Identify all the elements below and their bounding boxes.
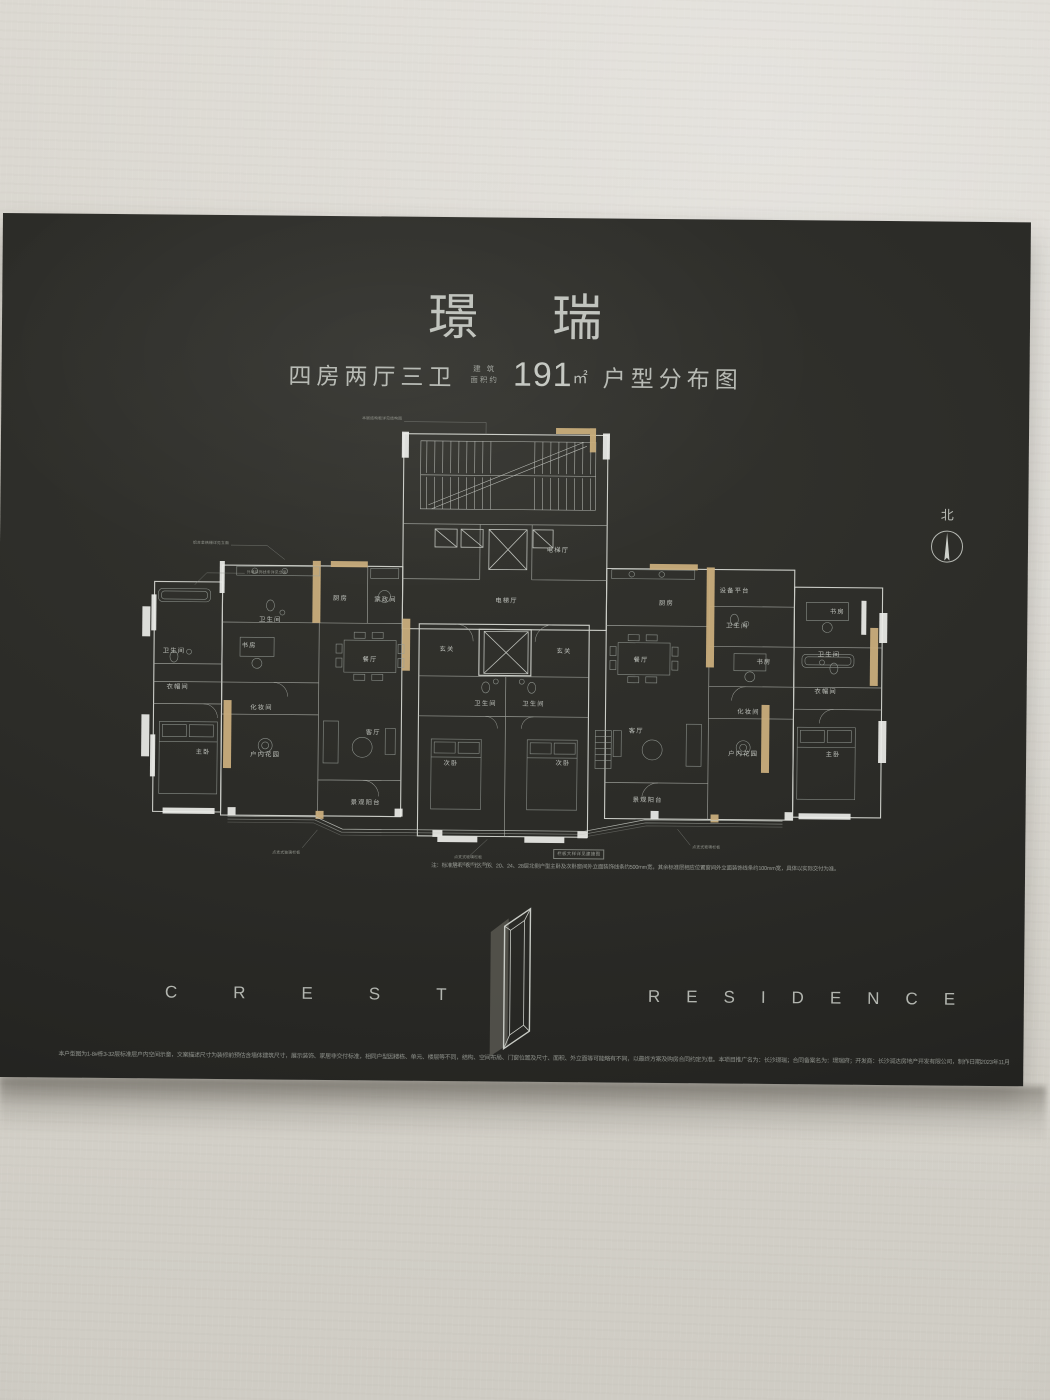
compass-icon [927, 525, 967, 565]
room-label: 客厅 [366, 727, 381, 736]
plan-annotation: 铝合金格栅详见立面 [193, 540, 229, 545]
room-label: 卫生间 [818, 649, 841, 658]
plan-annotation: 本层结构板详见结构图 [362, 415, 402, 420]
room-label: 主卧 [826, 749, 841, 758]
room-label: 家政间 [374, 594, 397, 603]
shear-walls [140, 429, 889, 846]
subtitle-suffix: 户型分布图 [603, 359, 743, 394]
room-label: 餐厅 [362, 654, 377, 663]
floor-plan: 电梯厅电梯厅厨房家政间餐厅卫生间书房卫生间衣帽间化妆间主卧户内花园客厅景观阳台玄… [132, 396, 902, 873]
plan-annotation: 点支式玻璃栏板 [272, 849, 300, 854]
room-label: 次卧 [555, 758, 570, 767]
room-label: 化妆间 [737, 707, 760, 716]
room-label: 次卧 [443, 758, 458, 767]
layout-text: 四房两厅三卫 [288, 356, 456, 392]
room-label: 化妆间 [250, 702, 273, 711]
area-prefix: 建 筑 面积约 [470, 365, 499, 386]
board-drop-shadow [0, 1077, 1046, 1144]
plan-outer-walls [152, 431, 884, 840]
floorplan-display-board: 璟 瑞 四房两厅三卫 建 筑 面积约 191㎡ 户型分布图 [0, 213, 1031, 1086]
room-label: 书房 [756, 657, 771, 666]
logo-text-crest: CREST [165, 983, 503, 1006]
room-label: 客厅 [629, 726, 644, 735]
room-label: 景观阳台 [351, 797, 381, 806]
room-label: 玄关 [557, 646, 572, 655]
room-labels: 电梯厅电梯厅厨房家政间餐厅卫生间书房卫生间衣帽间化妆间主卧户内花园客厅景观阳台玄… [161, 413, 847, 869]
room-label: 厨房 [333, 593, 348, 602]
room-label: 卫生间 [726, 621, 749, 630]
logo-text-residence: RESIDENCE [648, 987, 981, 1010]
unit-subtitle: 四房两厅三卫 建 筑 面积约 191㎡ 户型分布图 [1, 351, 1029, 399]
project-title: 璟 瑞 [2, 273, 1031, 354]
room-label: 景观阳台 [633, 795, 663, 804]
room-label: 餐厅 [633, 655, 648, 664]
room-label: 户内花园 [728, 749, 758, 758]
room-label: 卫生间 [474, 698, 497, 707]
leader-lines [192, 420, 694, 858]
tower-logo-icon [481, 900, 546, 1061]
plan-annotation: 外墙装饰线条详见立面 [247, 569, 287, 574]
detail-reference-box: 栏板大样详见建施图 [553, 849, 604, 859]
room-label: 设备平台 [720, 586, 750, 595]
room-label: 书房 [830, 607, 845, 616]
photo-of-floorplan-board: { "board": { "title": "璟 瑞", "subtitle":… [0, 0, 1050, 1400]
plan-annotation: 点支式玻璃栏板 [454, 854, 482, 859]
room-label: 卫生间 [259, 614, 282, 623]
room-label: 电梯厅 [547, 545, 570, 554]
room-label: 卫生间 [522, 699, 545, 708]
stair-core [420, 441, 596, 511]
area-unit: ㎡ [573, 370, 589, 387]
room-label: 书房 [242, 640, 257, 649]
room-label: 衣帽间 [814, 686, 837, 695]
room-label: 玄关 [440, 644, 455, 653]
north-label: 北 [925, 504, 969, 523]
room-label: 厨房 [659, 598, 674, 607]
room-label: 卫生间 [163, 645, 186, 654]
room-label: 主卧 [196, 747, 211, 756]
room-label: 户内花园 [250, 749, 280, 758]
plan-partitions [152, 521, 883, 840]
area-value: 191㎡ [513, 356, 589, 396]
room-label: 电梯厅 [495, 595, 518, 604]
plan-annotation: 点支式玻璃栏板 [692, 844, 720, 849]
north-indicator: 北 [925, 504, 970, 570]
room-label: 衣帽间 [166, 682, 189, 691]
